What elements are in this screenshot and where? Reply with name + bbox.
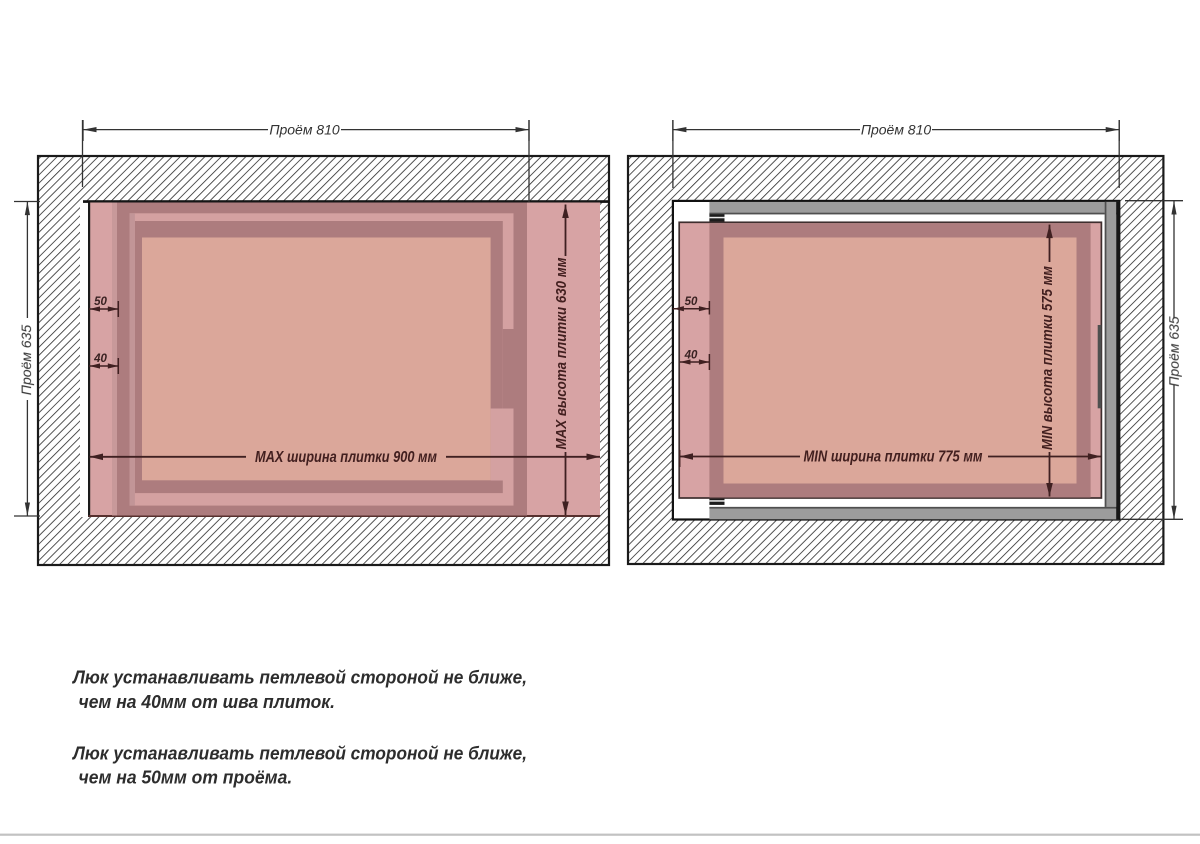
- svg-text:чем на 40мм от шва плиток.: чем на 40мм от шва плиток.: [79, 691, 336, 712]
- svg-text:MIN ширина плитки 775 мм: MIN ширина плитки 775 мм: [804, 449, 983, 466]
- svg-text:чем на 50мм от проёма.: чем на 50мм от проёма.: [79, 767, 293, 788]
- svg-text:Люк устанавливать петлевой сто: Люк устанавливать петлевой стороной не б…: [71, 667, 527, 688]
- svg-text:МАХ ширина плитки 900 мм: МАХ ширина плитки 900 мм: [255, 449, 437, 466]
- svg-text:50: 50: [94, 296, 107, 308]
- svg-text:Проём 635: Проём 635: [18, 325, 34, 396]
- svg-text:Проём 635: Проём 635: [1166, 316, 1182, 387]
- svg-text:Проём 810: Проём 810: [861, 122, 932, 138]
- svg-text:40: 40: [684, 350, 698, 362]
- svg-text:40: 40: [93, 353, 107, 365]
- svg-text:50: 50: [685, 296, 698, 308]
- svg-text:Проём 810: Проём 810: [269, 122, 340, 138]
- svg-text:МАХ высота плитки 630 мм: МАХ высота плитки 630 мм: [553, 258, 570, 450]
- svg-text:Люк устанавливать петлевой сто: Люк устанавливать петлевой стороной не б…: [71, 743, 527, 764]
- svg-text:MIN высота плитки 575 мм: MIN высота плитки 575 мм: [1039, 266, 1056, 450]
